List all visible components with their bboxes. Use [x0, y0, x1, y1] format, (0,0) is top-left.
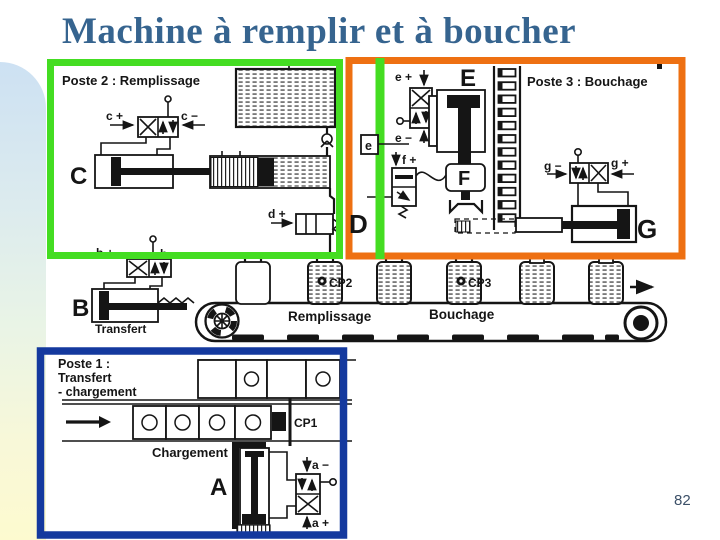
cylinder-c-label: C	[70, 163, 87, 190]
poste1-diagram: Poste 1 : Transfert - chargement	[58, 357, 356, 533]
bottle-empty	[236, 257, 270, 304]
sensor-e-label: e	[365, 139, 372, 153]
valve-f-plus-label: f +	[402, 153, 416, 167]
upper-crate-row	[198, 360, 356, 398]
valve-e-minus-label: e −	[395, 131, 412, 145]
end-pulley	[625, 307, 657, 339]
page-number: 82	[674, 492, 691, 509]
valve-a-minus-label: a −	[312, 458, 329, 472]
check-valve	[321, 127, 333, 156]
cylinder-e-label: E	[460, 65, 476, 92]
fill-sensor-label: CP2	[329, 276, 353, 290]
conveyor-diagram: b + b − B Transfert	[72, 236, 666, 341]
doser-d-label: D	[349, 209, 368, 239]
cap-sensor-label: CP3	[468, 276, 492, 290]
cylinder-e: E	[429, 65, 485, 168]
bottle-capped-1	[520, 254, 554, 304]
bottle-filled	[377, 257, 411, 304]
gripper-f: F	[446, 164, 485, 212]
valve-g-minus-label: g −	[544, 159, 562, 173]
dose-valve-d: d +	[268, 188, 340, 254]
dosing-chamber	[210, 151, 330, 188]
slide: Machine à remplir et à boucher Poste 2 :…	[0, 0, 720, 540]
transfer-label: Transfert	[95, 322, 146, 336]
poste3-diagram: Poste 3 : Bouchage e + e −	[367, 64, 662, 244]
cylinder-b-label: B	[72, 295, 89, 322]
fill-zone-label: Remplissage	[288, 309, 372, 324]
load-label: Chargement	[152, 445, 229, 460]
feed-arrow	[99, 416, 111, 428]
bottle-filled-cp3: CP3	[447, 257, 492, 304]
cylinder-g: G	[516, 206, 657, 244]
valve-b: b + b −	[96, 236, 178, 289]
valve-c-minus-label: c −	[181, 109, 198, 123]
bottle-capped-2	[589, 254, 623, 304]
cp1-sensor: CP1	[272, 398, 318, 446]
drive-sprocket	[206, 305, 239, 338]
bottle-filled-cp2: CP2	[308, 257, 353, 304]
cylinder-g-label: G	[637, 214, 657, 244]
valve-e-plus-label: e +	[395, 70, 412, 84]
poste1-title-line1: Poste 1 :	[58, 357, 110, 371]
machine-diagram: Poste 2 : Remplissage c + c −	[0, 0, 720, 540]
valve-g: g − g +	[544, 149, 634, 206]
valve-a: a − a +	[269, 452, 336, 530]
poste2-title: Poste 2 : Remplissage	[62, 73, 200, 88]
cap-zone-label: Bouchage	[429, 307, 495, 322]
corner-dot	[657, 64, 662, 69]
valve-g-plus-label: g +	[611, 156, 629, 170]
liquid-tank	[236, 63, 335, 127]
cylinder-a-label: A	[210, 474, 227, 501]
gripper-f-label: F	[458, 168, 470, 190]
poste2-diagram: Poste 2 : Remplissage c + c −	[62, 63, 340, 254]
poste3-title: Poste 3 : Bouchage	[527, 74, 648, 89]
poste1-title-line2: Transfert	[58, 371, 112, 385]
dose-valve-d-label: d +	[268, 207, 286, 221]
valve-a-plus-label: a +	[312, 516, 329, 530]
poste1-title-line3: - chargement	[58, 385, 137, 399]
cylinder-b: B Transfert	[72, 289, 194, 336]
cylinder-c: C	[70, 155, 213, 190]
valve-c-plus-label: c +	[106, 109, 123, 123]
cp1-sensor-label: CP1	[294, 416, 318, 430]
valve-c: c + c −	[101, 96, 205, 155]
